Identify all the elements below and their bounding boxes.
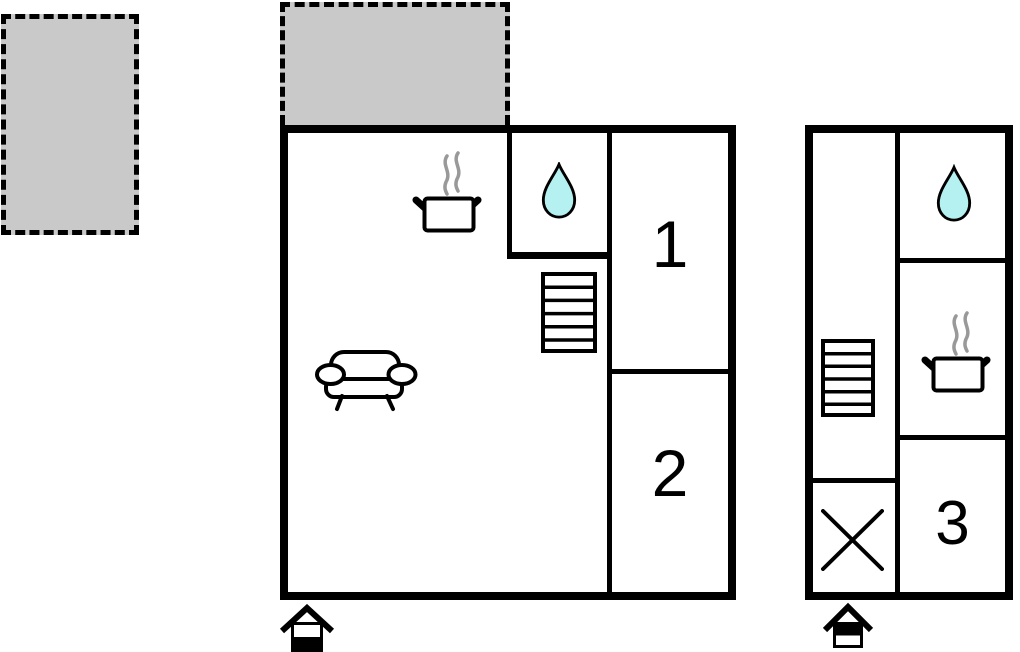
room-2-label: 2 [612,440,728,506]
stairs-icon [821,339,875,417]
wall-bathroom-left [507,133,512,255]
wall-main-bottom [280,592,736,600]
wall-room3-top [900,435,1005,440]
terrace-top-left [1,14,139,235]
stove-pot-icon [410,148,484,234]
floor-plan-scene: 1 2 [0,0,1020,652]
water-drop-icon [935,164,973,224]
wall-annex-bath-bottom [900,258,1005,263]
wall-crossed-area-top [813,478,895,483]
wall-bathroom-bottom [507,252,612,259]
room-1-label: 1 [612,211,728,277]
entrance-house-icon [279,604,335,652]
wall-annex-bottom [805,592,1013,600]
water-drop-icon [540,162,578,220]
room-3-label: 3 [900,493,1005,555]
wall-annex-left [805,125,813,600]
wall-bedrooms-divider-vertical [607,133,612,592]
wall-main-right [728,125,736,600]
wall-room1-room2-divider [612,369,728,374]
sofa-icon [315,348,419,412]
entrance-house-icon [822,602,874,648]
wall-annex-top [805,125,1013,133]
stairs-icon [541,272,597,353]
wall-annex-right [1005,125,1013,600]
terrace-above-main-building [280,2,510,125]
wall-main-left [280,125,288,600]
crossed-area-icon [821,509,884,571]
stove-pot-icon [919,308,993,394]
wall-main-top [280,125,736,133]
